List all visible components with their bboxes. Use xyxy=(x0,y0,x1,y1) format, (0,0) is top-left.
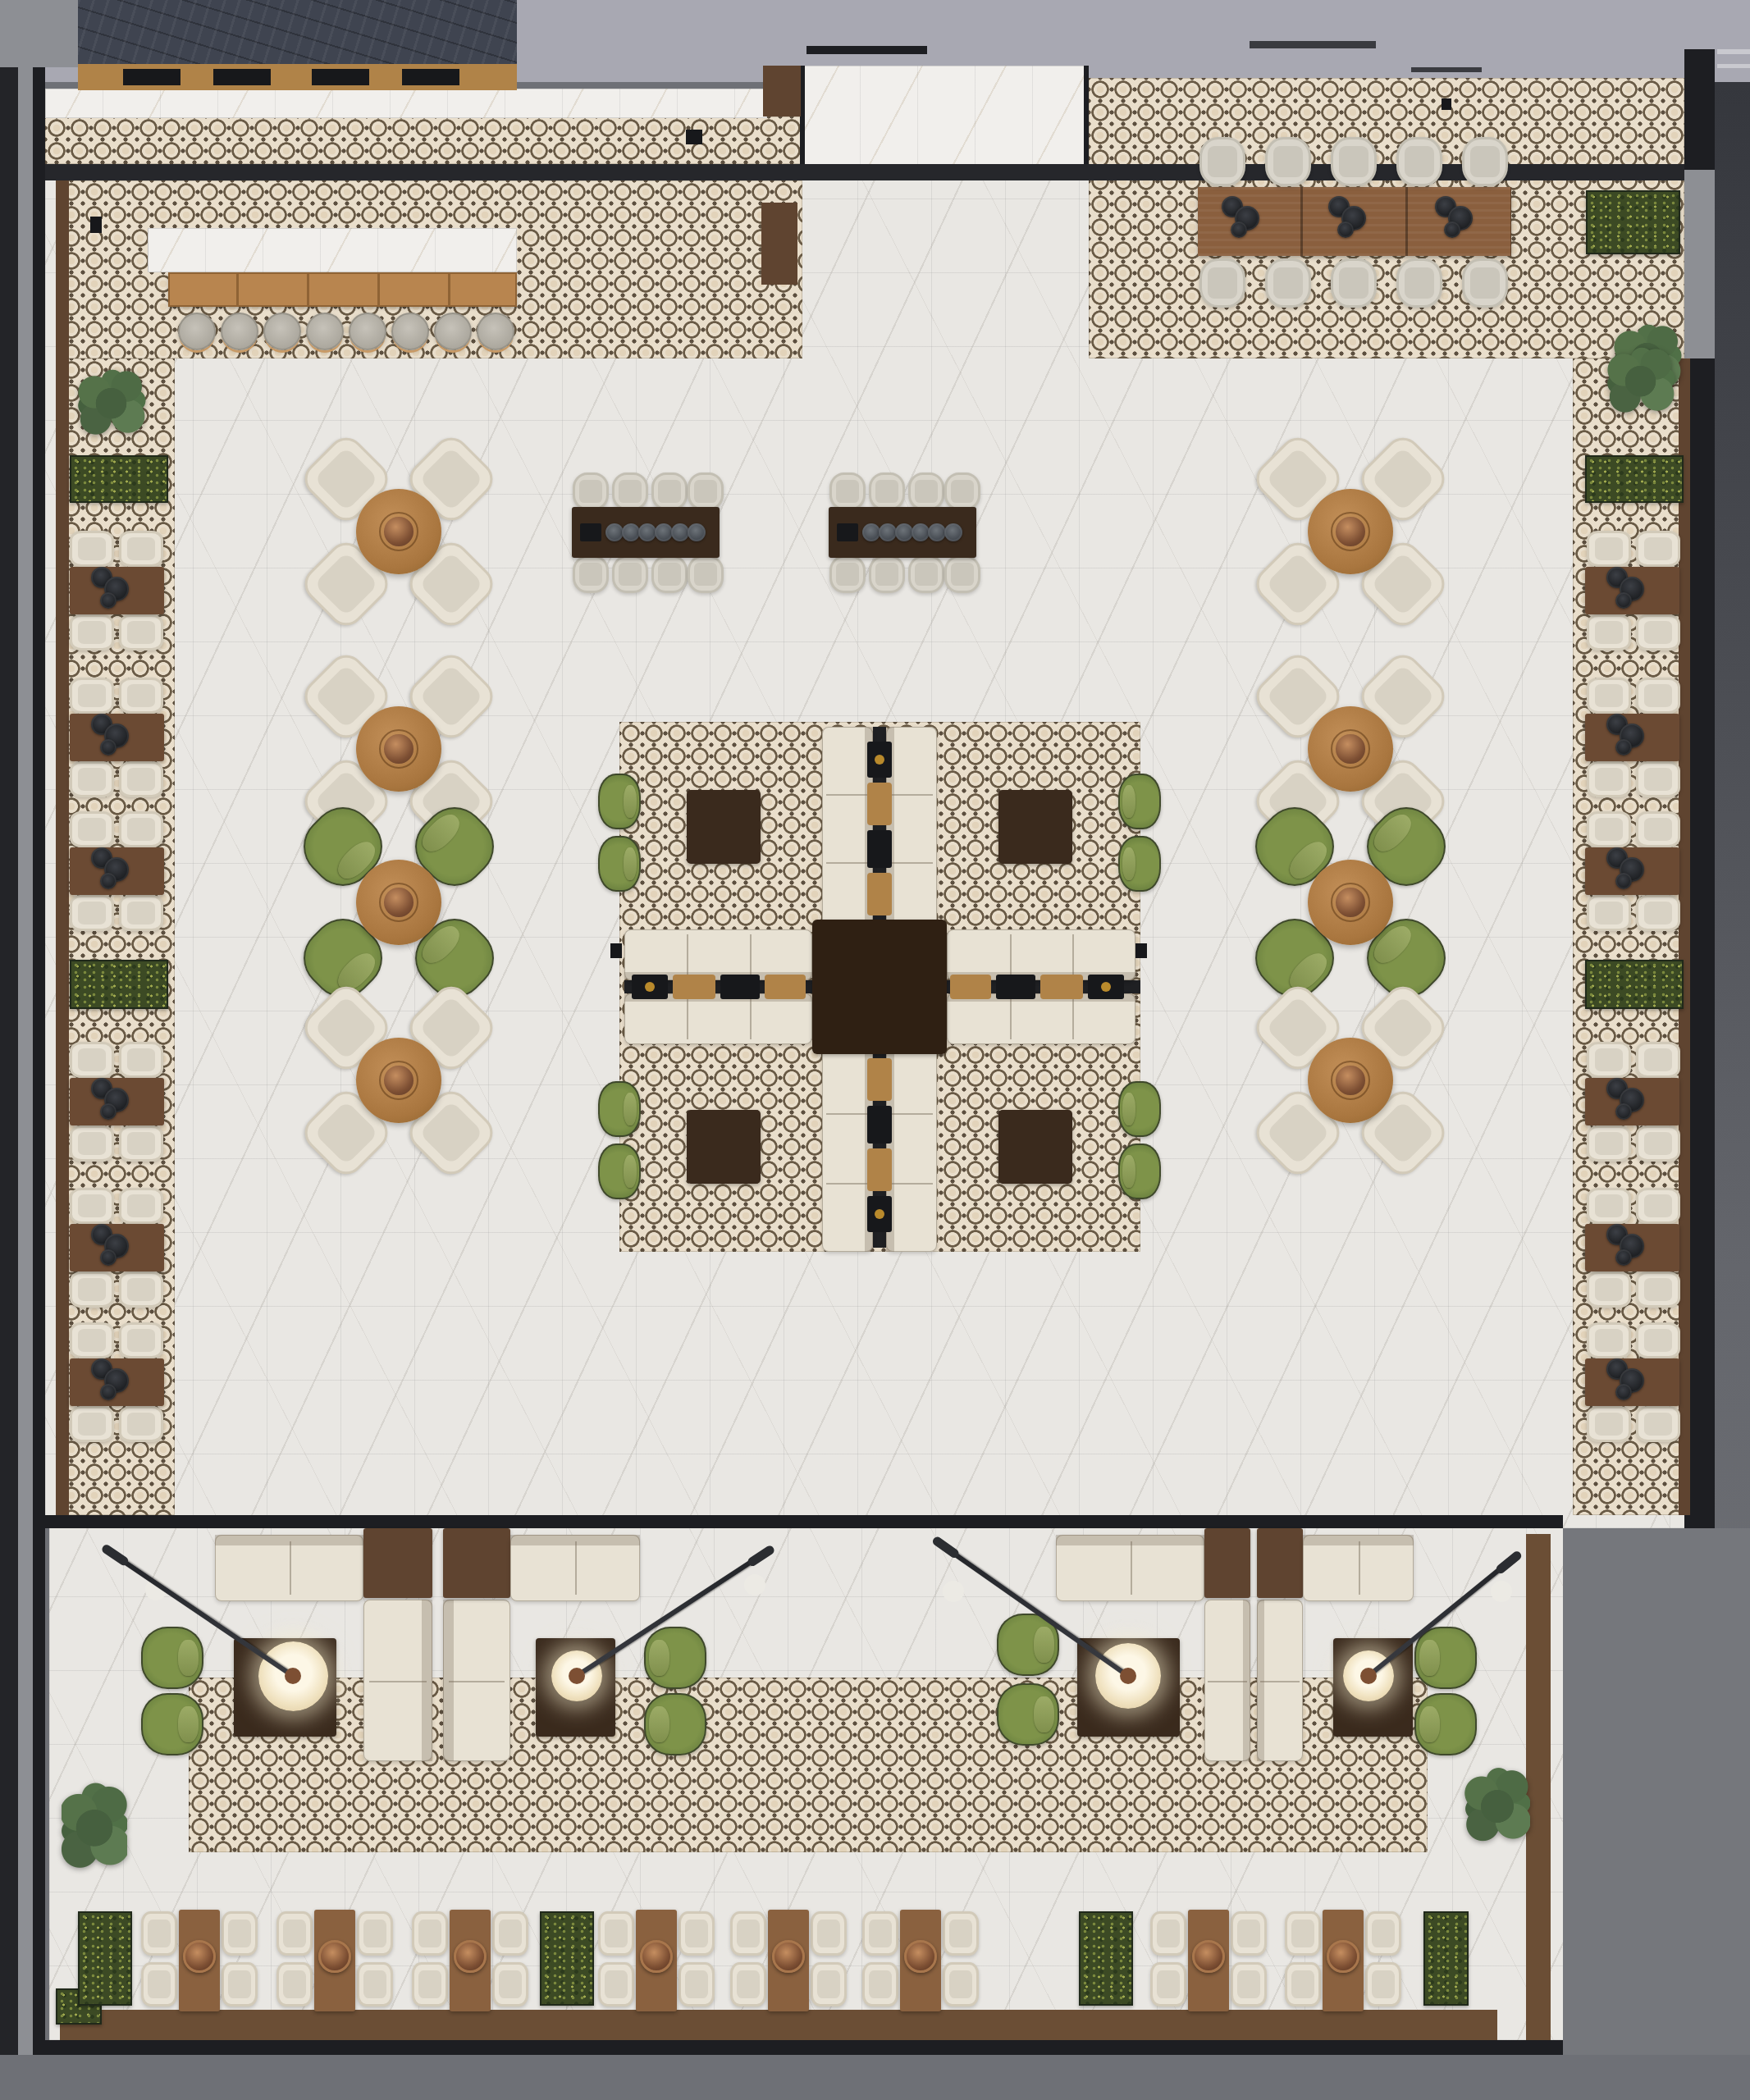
spine-cushion xyxy=(867,1148,892,1191)
chair-seat xyxy=(1595,621,1624,643)
chair-seat xyxy=(1237,1970,1259,1999)
table-bowl xyxy=(100,1103,117,1120)
booth-chair xyxy=(357,1911,393,1956)
dining-chair xyxy=(573,472,609,510)
chair-seat xyxy=(418,1970,441,1999)
back-counter-appliance xyxy=(213,69,271,85)
round-dining-table xyxy=(356,706,441,792)
bar-front-panels xyxy=(168,272,517,307)
green-armchair xyxy=(1118,1081,1161,1137)
sofa-seam xyxy=(890,1113,933,1115)
booth-chair xyxy=(1365,1962,1401,2006)
chair-seat xyxy=(1157,1970,1179,1999)
ceiling-vent xyxy=(1250,41,1376,48)
table-bowl xyxy=(655,523,673,541)
chair-cushion xyxy=(1419,1640,1439,1677)
center-sofa xyxy=(624,929,812,980)
center-sofa xyxy=(886,1044,937,1252)
corridor-wall-right xyxy=(1084,66,1089,166)
booth-chair xyxy=(811,1911,847,1956)
booth-chair xyxy=(1231,1962,1267,2006)
chair-seat xyxy=(283,1920,305,1948)
sofa-seam xyxy=(687,934,688,975)
lamp-hub xyxy=(285,1668,301,1684)
lamp-base xyxy=(1491,1581,1512,1602)
chair-seat xyxy=(836,480,858,504)
booth-chair xyxy=(1587,1125,1631,1162)
copper-bowl xyxy=(1327,1940,1359,1973)
dining-chair xyxy=(829,472,866,510)
table-bowl xyxy=(638,523,656,541)
booth-chair xyxy=(119,1322,163,1358)
center-sofa xyxy=(947,929,1135,980)
chair-cushion xyxy=(1419,1706,1439,1743)
floor-outlet xyxy=(610,943,622,958)
booth-chair xyxy=(1587,811,1631,847)
communal-chair xyxy=(1462,137,1508,186)
booth-chair xyxy=(1587,1042,1631,1078)
table-device xyxy=(837,523,858,541)
chair-seat xyxy=(127,902,156,924)
copper-bowl xyxy=(454,1940,487,1973)
round-dining-table xyxy=(356,860,441,945)
green-armchair xyxy=(644,1627,706,1689)
sofa-corner-panel xyxy=(1204,1528,1250,1598)
bottom-wall xyxy=(33,2040,1563,2055)
table-bowl xyxy=(1337,221,1354,238)
chair-cushion xyxy=(1122,1093,1135,1125)
chair-cushion xyxy=(1122,1155,1135,1188)
table-bowl xyxy=(100,1384,117,1400)
booth-chair xyxy=(1636,811,1680,847)
planter-hedge xyxy=(1585,455,1684,503)
green-armchair xyxy=(598,774,641,829)
right-wall-bench xyxy=(1679,358,1690,1515)
sofa-seam xyxy=(1010,998,1012,1039)
green-armchair xyxy=(598,1144,641,1199)
ceiling-vent xyxy=(1411,67,1482,72)
chair-seat xyxy=(658,563,680,587)
booth-chair xyxy=(70,1188,114,1224)
spine-side-table xyxy=(720,975,760,999)
communal-chair xyxy=(1396,258,1442,308)
planter-hedge xyxy=(1423,1911,1469,2006)
booth-chair xyxy=(70,614,114,651)
host-stand xyxy=(761,203,797,285)
green-armchair xyxy=(1118,774,1161,829)
communal-chair xyxy=(1199,258,1245,308)
chair-seat xyxy=(1644,1413,1673,1435)
chair-seat xyxy=(915,563,937,587)
green-armchair xyxy=(997,1683,1059,1746)
chair-seat xyxy=(915,480,937,504)
bar-stool xyxy=(349,313,386,350)
table-bowl xyxy=(605,523,624,541)
chair-cushion xyxy=(1034,1696,1053,1733)
booth-chair xyxy=(730,1911,766,1956)
chair-seat xyxy=(1291,1920,1314,1948)
sofa-seam xyxy=(1010,934,1012,975)
chair-seat xyxy=(1595,1132,1624,1154)
chair-seat xyxy=(1595,768,1624,790)
booth-chair xyxy=(679,1962,715,2006)
copper-bowl xyxy=(1336,517,1364,546)
floor-outlet xyxy=(1135,943,1147,958)
booth-chair xyxy=(1636,1125,1680,1162)
sofa-corner-panel xyxy=(1257,1528,1303,1598)
planter-hedge xyxy=(78,1911,132,2006)
chair-cushion xyxy=(624,847,637,880)
sofa-seam xyxy=(826,1183,869,1185)
chair-seat xyxy=(875,563,898,587)
exterior-corner-top-left xyxy=(0,0,78,67)
table-bowl xyxy=(100,873,117,889)
ceiling-vent xyxy=(1717,49,1750,54)
spine-cushion xyxy=(867,783,892,825)
booth-chair xyxy=(70,1042,114,1078)
chair-seat xyxy=(78,537,107,559)
chair-seat xyxy=(1595,537,1624,559)
lounge-sofa xyxy=(1204,1600,1250,1761)
chair-cushion xyxy=(649,1706,669,1743)
booth-chair xyxy=(943,1962,979,2006)
chair-cushion xyxy=(624,1155,637,1188)
sofa-seam xyxy=(290,1541,291,1595)
lounge-sofa xyxy=(1056,1535,1204,1601)
dining-chair xyxy=(869,472,905,510)
lounge-sofa xyxy=(1257,1600,1303,1761)
bar-stool xyxy=(306,313,344,350)
chair-seat xyxy=(817,1920,839,1948)
table-bowl xyxy=(1615,873,1632,889)
table-bowl xyxy=(1444,221,1460,238)
booth-chair xyxy=(70,1125,114,1162)
sofa-corner-panel xyxy=(363,1528,432,1598)
booth-chair xyxy=(1587,1271,1631,1308)
booth-chair xyxy=(1587,1188,1631,1224)
booth-chair xyxy=(119,1271,163,1308)
chair-seat xyxy=(1644,1194,1673,1217)
chair-cushion xyxy=(649,1640,669,1677)
chair-seat xyxy=(363,1920,386,1948)
booth-chair xyxy=(276,1911,313,1956)
spine-side-table xyxy=(867,1106,892,1144)
back-counter-appliance xyxy=(312,69,369,85)
chair-seat xyxy=(1644,768,1673,790)
copper-bowl xyxy=(318,1940,351,1973)
planter-tree xyxy=(1606,345,1675,415)
sofa-seam xyxy=(1072,934,1074,975)
chair-seat xyxy=(1405,146,1434,178)
booth-chair xyxy=(70,1271,114,1308)
chair-seat xyxy=(1372,1920,1394,1948)
table-bowl xyxy=(688,523,706,541)
table-bowl xyxy=(928,523,946,541)
center-sofa xyxy=(947,993,1135,1044)
chair-seat xyxy=(127,818,156,840)
chair-seat xyxy=(1595,1329,1624,1351)
booth-chair xyxy=(1636,1406,1680,1442)
table-bowl xyxy=(100,592,117,609)
booth-chair xyxy=(1285,1962,1321,2006)
brand-dot xyxy=(875,1209,884,1219)
copper-bowl xyxy=(640,1940,673,1973)
booth-chair xyxy=(119,811,163,847)
floor-outlet xyxy=(1442,98,1451,110)
booth-chair xyxy=(1636,1271,1680,1308)
center-coffee-table xyxy=(998,1110,1072,1184)
chair-seat xyxy=(658,480,680,504)
copper-bowl xyxy=(1336,888,1364,916)
booth-chair xyxy=(119,1406,163,1442)
chair-seat xyxy=(127,1329,156,1351)
sofa-seam xyxy=(1131,1541,1132,1595)
chair-seat xyxy=(1595,902,1624,924)
booth-chair xyxy=(222,1962,258,2006)
table-device xyxy=(580,523,601,541)
planter-hedge xyxy=(540,1911,594,2006)
dining-chair xyxy=(829,555,866,593)
booth-chair xyxy=(119,1125,163,1162)
booth-chair xyxy=(70,678,114,714)
chair-seat xyxy=(737,1970,759,1999)
round-dining-table xyxy=(1308,489,1393,574)
chair-seat xyxy=(817,1970,839,1999)
booth-chair xyxy=(492,1962,528,2006)
exterior-left-dark-strip xyxy=(0,67,18,2055)
chair-seat xyxy=(127,537,156,559)
chair-seat xyxy=(869,1970,891,1999)
spine-cushion xyxy=(867,1058,892,1101)
communal-chair xyxy=(1331,137,1377,186)
bar-counter-top xyxy=(148,228,517,272)
chair-seat xyxy=(605,1970,627,1999)
bar-stool xyxy=(263,313,301,350)
communal-chair xyxy=(1331,258,1377,308)
planter-tree xyxy=(1464,1764,1530,1846)
dining-chair xyxy=(651,472,688,510)
chair-seat xyxy=(1470,267,1500,299)
bottom-bench-wood xyxy=(60,2010,1497,2040)
booth-chair xyxy=(276,1962,313,2006)
center-sofa xyxy=(886,727,937,929)
copper-bowl xyxy=(904,1940,937,1973)
kitchen-back-wall xyxy=(78,0,517,67)
left-wall-bench xyxy=(56,180,69,1515)
chair-cushion xyxy=(624,785,637,818)
entry-corridor-floor xyxy=(802,66,1089,180)
booth-chair xyxy=(70,761,114,797)
planter-hedge xyxy=(70,455,168,503)
booth-chair xyxy=(119,1042,163,1078)
floor-plan-canvas xyxy=(0,0,1750,2100)
planter-hedge xyxy=(1586,190,1680,254)
lounge-sofa xyxy=(363,1600,432,1761)
booth-chair xyxy=(1587,895,1631,931)
lamp-base xyxy=(744,1574,765,1596)
chair-seat xyxy=(1644,684,1673,706)
chair-seat xyxy=(579,480,601,504)
booth-chair xyxy=(1587,1406,1631,1442)
booth-chair xyxy=(70,1322,114,1358)
round-dining-table xyxy=(1308,706,1393,792)
copper-bowl xyxy=(384,1066,413,1094)
sofa-seam xyxy=(750,934,752,975)
center-sofa xyxy=(822,1044,873,1252)
chair-seat xyxy=(1291,1970,1314,1999)
dining-chair xyxy=(573,555,609,593)
chair-seat xyxy=(685,1920,707,1948)
brand-dot xyxy=(645,982,655,992)
dining-chair xyxy=(944,555,980,593)
booth-chair xyxy=(70,1406,114,1442)
booth-chair xyxy=(1150,1911,1186,1956)
green-armchair xyxy=(1118,1144,1161,1199)
chair-seat xyxy=(363,1970,386,1999)
communal-chair xyxy=(1265,258,1311,308)
copper-bowl xyxy=(384,734,413,763)
chair-seat xyxy=(78,1329,107,1351)
table-bowl xyxy=(862,523,880,541)
table-bowl xyxy=(944,523,962,541)
chair-seat xyxy=(1644,621,1673,643)
booth-chair xyxy=(1636,1042,1680,1078)
chair-seat xyxy=(78,902,107,924)
spine-cushion xyxy=(950,975,991,999)
copper-bowl xyxy=(1192,1940,1225,1973)
lounge-sofa xyxy=(443,1600,510,1761)
booth-chair xyxy=(1636,614,1680,651)
booth-chair xyxy=(598,1962,634,2006)
spine-cushion xyxy=(673,975,715,999)
chair-seat xyxy=(619,563,641,587)
chair-seat xyxy=(78,1132,107,1154)
chair-seat xyxy=(951,563,973,587)
green-armchair xyxy=(1118,836,1161,892)
dining-chair xyxy=(908,555,944,593)
booth-chair xyxy=(1636,678,1680,714)
copper-bowl xyxy=(384,517,413,546)
dining-chair xyxy=(688,555,724,593)
chair-seat xyxy=(1339,267,1368,299)
booth-chair xyxy=(119,531,163,567)
lamp-base xyxy=(943,1581,964,1602)
spine-cushion xyxy=(1040,975,1083,999)
sofa-seam xyxy=(890,1183,933,1185)
booth-chair xyxy=(492,1911,528,1956)
bar-stool xyxy=(434,313,472,350)
chair-cushion xyxy=(178,1640,198,1677)
communal-chair xyxy=(1396,137,1442,186)
table-bowl xyxy=(1615,592,1632,609)
back-counter-top xyxy=(45,89,767,118)
dining-chair xyxy=(944,472,980,510)
green-armchair xyxy=(1414,1627,1477,1689)
planter-hedge xyxy=(70,960,168,1009)
left-wall xyxy=(33,67,45,2040)
ceiling-vent xyxy=(806,46,927,54)
chair-seat xyxy=(78,621,107,643)
chair-seat xyxy=(148,1970,170,1999)
chair-seat xyxy=(127,1132,156,1154)
chair-seat xyxy=(694,563,716,587)
chair-seat xyxy=(127,684,156,706)
booth-chair xyxy=(943,1911,979,1956)
planter-hedge xyxy=(1585,960,1684,1009)
booth-chair xyxy=(1636,1322,1680,1358)
table-bowl xyxy=(1615,1384,1632,1400)
chair-seat xyxy=(1644,818,1673,840)
booth-chair xyxy=(119,1188,163,1224)
chair-seat xyxy=(737,1920,759,1948)
chair-seat xyxy=(1595,818,1624,840)
spine-cushion xyxy=(765,975,806,999)
chair-seat xyxy=(1644,1329,1673,1351)
booth-chair xyxy=(1285,1911,1321,1956)
lamp-hub xyxy=(1360,1668,1377,1684)
brand-dot xyxy=(1101,982,1111,992)
lounge-sofa xyxy=(1303,1535,1414,1601)
chair-seat xyxy=(499,1970,521,1999)
booth-chair xyxy=(1636,895,1680,931)
ceiling-vent xyxy=(1717,64,1750,68)
sofa-seam xyxy=(1359,1541,1360,1595)
chair-seat xyxy=(1595,1048,1624,1071)
corridor-wood-block xyxy=(763,66,801,116)
chair-seat xyxy=(283,1970,305,1999)
booth-chair xyxy=(119,614,163,651)
chair-seat xyxy=(127,768,156,790)
green-armchair xyxy=(1414,1693,1477,1755)
lounge-sofa xyxy=(510,1535,640,1601)
booth-chair xyxy=(119,761,163,797)
green-armchair xyxy=(598,1081,641,1137)
center-block-table xyxy=(812,920,947,1054)
table-bowl xyxy=(912,523,930,541)
booth-chair xyxy=(1150,1962,1186,2006)
chair-seat xyxy=(1273,146,1303,178)
booth-chair xyxy=(357,1962,393,2006)
dining-chair xyxy=(612,472,648,510)
chair-seat xyxy=(1208,146,1237,178)
booth-chair xyxy=(70,895,114,931)
booth-chair xyxy=(141,1911,177,1956)
booth-chair xyxy=(1587,761,1631,797)
bar-stool xyxy=(391,313,429,350)
table-bowl xyxy=(895,523,913,541)
round-dining-table xyxy=(1308,1038,1393,1123)
chair-seat xyxy=(78,768,107,790)
chair-seat xyxy=(78,684,107,706)
sofa-seam xyxy=(750,998,752,1039)
sofa-seam xyxy=(1208,1681,1246,1682)
sofa-seam xyxy=(449,1681,505,1682)
chair-seat xyxy=(949,1970,971,1999)
sofa-seam xyxy=(687,998,688,1039)
green-armchair xyxy=(141,1627,203,1689)
chair-seat xyxy=(1595,1278,1624,1300)
planter-tree xyxy=(76,367,146,437)
booth-chair xyxy=(1231,1911,1267,1956)
center-coffee-table xyxy=(687,1110,761,1184)
planter-hedge xyxy=(1079,1911,1133,2006)
chair-seat xyxy=(1644,902,1673,924)
booth-chair xyxy=(862,1962,898,2006)
bar-stool xyxy=(178,313,216,350)
center-sofa xyxy=(624,993,812,1044)
booth-chair xyxy=(811,1962,847,2006)
chair-seat xyxy=(1595,1413,1624,1435)
